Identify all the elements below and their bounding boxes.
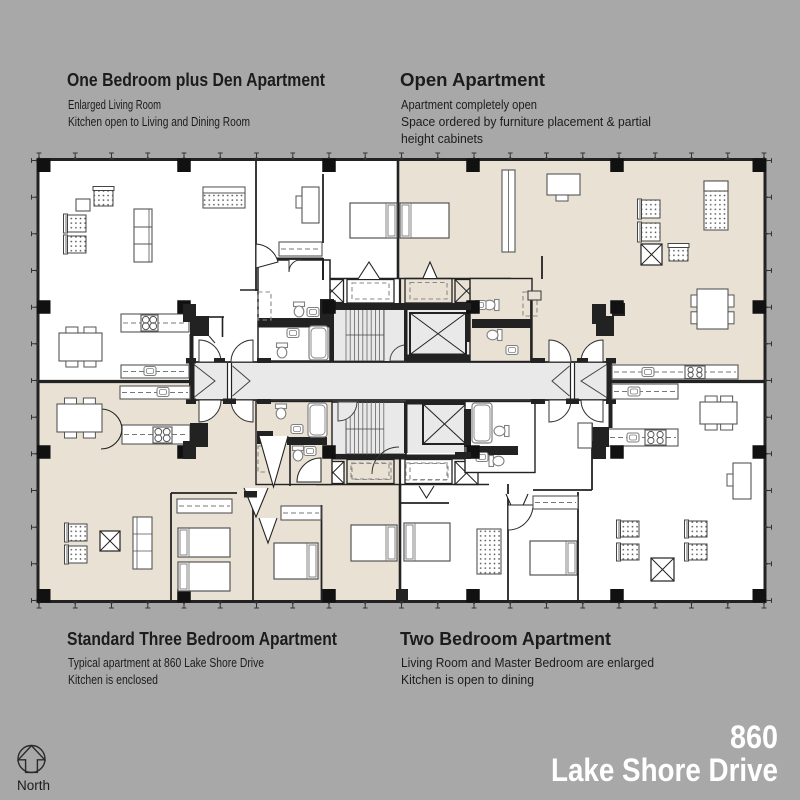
svg-text:Standard Three Bedroom Apartme: Standard Three Bedroom Apartment	[67, 628, 337, 649]
svg-text:Kitchen open to Living and Din: Kitchen open to Living and Dining Room	[68, 114, 250, 129]
svg-text:Lake Shore Drive: Lake Shore Drive	[551, 752, 778, 788]
svg-text:Space ordered by furniture pla: Space ordered by furniture placement & p…	[401, 114, 651, 129]
svg-text:Enlarged Living Room: Enlarged Living Room	[68, 97, 161, 112]
svg-text:Living Room and Master Bedroom: Living Room and Master Bedroom are enlar…	[401, 655, 654, 670]
svg-text:860: 860	[730, 719, 778, 755]
svg-text:Kitchen is enclosed: Kitchen is enclosed	[68, 672, 158, 687]
svg-text:Kitchen is open to dining: Kitchen is open to dining	[401, 672, 534, 687]
svg-text:One Bedroom plus Den Apartment: One Bedroom plus Den Apartment	[67, 69, 325, 90]
svg-text:Typical apartment at 860 Lake: Typical apartment at 860 Lake Shore Driv…	[68, 655, 264, 670]
svg-text:Two Bedroom Apartment: Two Bedroom Apartment	[400, 628, 611, 649]
svg-text:height cabinets: height cabinets	[401, 131, 483, 146]
svg-text:Apartment completely open: Apartment completely open	[401, 97, 537, 112]
svg-text:North: North	[17, 778, 50, 793]
svg-text:Open Apartment: Open Apartment	[400, 69, 545, 90]
